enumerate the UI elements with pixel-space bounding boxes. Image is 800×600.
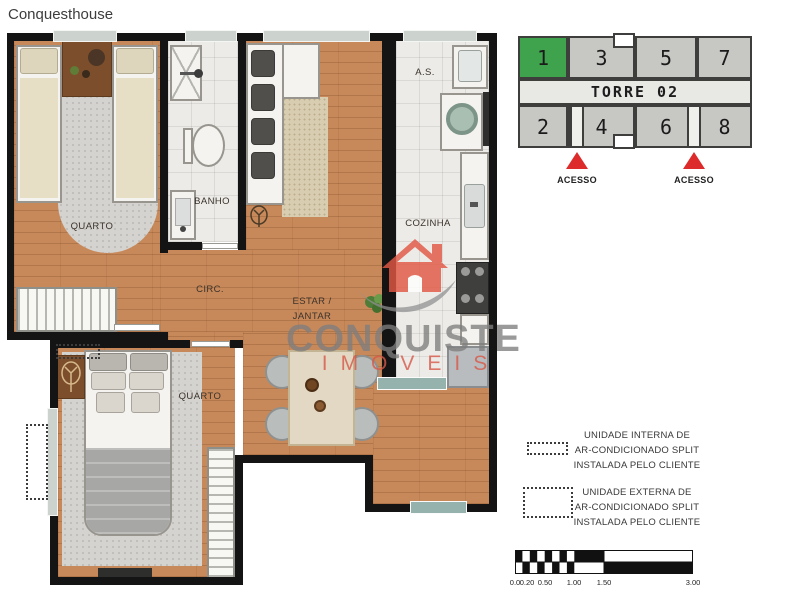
scale-label: 1.00 <box>559 578 589 587</box>
legend-line: AR-CONDICIONADO SPLIT <box>566 443 708 458</box>
tower-unit-5: 5 <box>635 36 697 79</box>
tower-unit-2: 2 <box>518 105 568 148</box>
door-leaf <box>202 243 238 249</box>
legend-external-ac-text: UNIDADE EXTERNA DE AR-CONDICIONADO SPLIT… <box>566 485 708 530</box>
wall-segment <box>7 33 14 340</box>
room-label-circulation: CIRC. <box>188 284 232 296</box>
bedroom1-bed-right-cover <box>116 78 154 198</box>
burner-icon <box>461 294 470 303</box>
ac-external-unit-marker <box>26 424 48 500</box>
cup-icon <box>82 70 90 78</box>
window <box>185 30 237 42</box>
bedroom1-wardrobe <box>16 287 117 332</box>
access-label: ACESSO <box>669 175 719 185</box>
wall-segment <box>382 33 396 377</box>
sofa-chaise <box>282 43 320 99</box>
access-arrow-icon <box>566 152 588 169</box>
room-label-bedroom1: QUARTO <box>62 221 122 233</box>
tower-corridor: TORRE 02 <box>518 79 752 105</box>
legend-internal-ac-symbol <box>527 442 568 455</box>
room-label-kitchen: COZINHA <box>398 218 458 230</box>
floor-plan-page: Conquesthouse <box>0 0 800 600</box>
tower-access-corridor <box>687 105 701 148</box>
faucet-icon <box>180 226 186 232</box>
tower-notch <box>613 134 635 149</box>
window <box>53 30 117 42</box>
window <box>403 30 477 42</box>
room-label-bathroom: BANHO <box>188 196 236 208</box>
burner-icon <box>475 294 484 303</box>
burner-icon <box>475 267 484 276</box>
plant-icon <box>70 66 79 75</box>
bed-pillow <box>91 372 126 390</box>
window-sill <box>410 501 467 514</box>
burner-icon <box>461 267 470 276</box>
wall-segment <box>160 242 202 250</box>
tower-unit-1: 1 <box>518 36 568 79</box>
scale-label: 0.50 <box>530 578 560 587</box>
bed-pillow <box>130 353 168 371</box>
sofa-cushion <box>251 84 275 111</box>
room-label-bedroom2: QUARTO <box>174 391 226 403</box>
legend-line: AR-CONDICIONADO SPLIT <box>566 500 708 515</box>
wall-segment <box>235 455 373 463</box>
window <box>47 408 58 516</box>
wall-segment <box>238 33 246 250</box>
living-rug <box>282 97 328 217</box>
legend-line: UNIDADE INTERNA DE <box>566 428 708 443</box>
bedroom1-bed-right-pillow <box>116 48 154 74</box>
table-decor-icon <box>314 400 326 412</box>
fridge <box>447 346 489 388</box>
sofa-cushion <box>251 50 275 77</box>
room-label-living-line1: ESTAR / <box>282 296 342 308</box>
laundry-tank-basin <box>458 50 482 82</box>
dining-table <box>288 350 355 446</box>
ac-internal-unit-marker <box>56 344 100 359</box>
tower-notch <box>613 33 635 48</box>
toilet-bowl <box>192 124 225 167</box>
page-title: Conquesthouse <box>8 6 113 23</box>
bedroom2-dresser <box>98 568 152 577</box>
door-leaf <box>114 324 160 331</box>
access-arrow-icon <box>683 152 705 169</box>
washer-drum-icon <box>446 103 478 135</box>
sofa-cushion <box>251 152 275 179</box>
wall-segment <box>489 33 497 512</box>
room-label-service: A.S. <box>407 67 443 79</box>
wall-segment <box>160 33 168 253</box>
bed-blanket <box>86 448 170 534</box>
access-label: ACESSO <box>552 175 602 185</box>
bedroom2-wardrobe <box>207 447 235 579</box>
kitchen-faucet-icon <box>470 202 478 207</box>
legend-line: INSTALADA PELO CLIENTE <box>566 458 708 473</box>
shower-head-icon <box>194 69 203 78</box>
tower-unit-8: 8 <box>697 105 752 148</box>
bedroom1-bed-left-cover <box>20 78 58 198</box>
kitchen-cabinet <box>460 314 489 345</box>
room-label-living-line2: JANTAR <box>282 311 342 323</box>
sofa-cushion <box>251 118 275 145</box>
floor-living-right <box>373 380 489 504</box>
table-decor-icon <box>305 378 319 392</box>
tower-access-corridor <box>570 105 584 148</box>
wall-segment <box>7 332 168 340</box>
ceiling-fan-icon <box>60 360 82 396</box>
window <box>263 30 370 42</box>
bed-pillow <box>131 392 160 413</box>
legend-internal-ac-text: UNIDADE INTERNA DE AR-CONDICIONADO SPLIT… <box>566 428 708 473</box>
door-leaf <box>191 341 230 347</box>
wall-segment <box>50 577 243 585</box>
scale-label: 3.00 <box>678 578 708 587</box>
legend-line: UNIDADE EXTERNA DE <box>566 485 708 500</box>
wall-segment <box>235 455 243 585</box>
scale-bar-graphic <box>515 550 693 574</box>
balcony-threshold <box>377 377 447 390</box>
bedroom1-bed-left-pillow <box>20 48 58 74</box>
bed-pillow <box>96 392 125 413</box>
legend-line: INSTALADA PELO CLIENTE <box>566 515 708 530</box>
scale-label: 1.50 <box>589 578 619 587</box>
wall-segment <box>230 340 243 348</box>
ceiling-fan-icon <box>250 205 268 229</box>
tower-unit-7: 7 <box>697 36 752 79</box>
nightstand-decor-icon <box>88 49 105 66</box>
bed-pillow <box>129 372 164 390</box>
